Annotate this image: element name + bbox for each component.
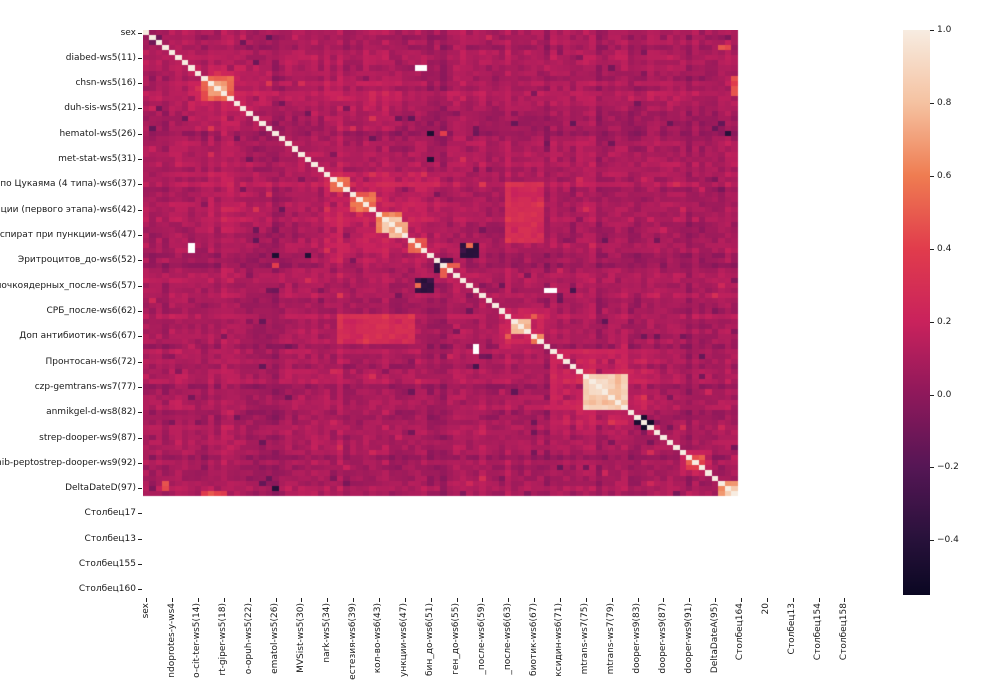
- colorbar-tick-label: 0.8: [937, 98, 951, 108]
- x-tick-mark: [405, 598, 406, 602]
- y-tick-label: czp-gemtrans-ws7(77): [35, 382, 136, 392]
- y-tick-mark: [138, 58, 142, 59]
- x-tick-label: _после-ws6(63): [503, 603, 514, 675]
- x-tick-mark: [715, 598, 716, 602]
- y-tick-mark: [138, 539, 142, 540]
- y-tick-label: chsn-ws5(16): [75, 78, 136, 88]
- x-tick-label: mtrans-ws7(75): [580, 603, 591, 674]
- x-tick-mark: [146, 598, 147, 602]
- colorbar-tick-label: −0.4: [937, 535, 959, 545]
- x-tick-label: Столбец158: [839, 603, 850, 660]
- x-tick-label: Столбец154: [813, 603, 824, 660]
- y-tick-mark: [138, 83, 142, 84]
- heatmap-canvas: [143, 30, 867, 597]
- y-tick-mark: [138, 184, 142, 185]
- y-tick-label: strep-dooper-ws9(87): [39, 433, 136, 443]
- x-tick-label: rt-giper-ws5(18): [218, 603, 229, 676]
- y-tick-label: duh-sis-ws5(21): [64, 103, 136, 113]
- y-tick-mark: [138, 564, 142, 565]
- x-tick-mark: [663, 598, 664, 602]
- y-tick-label: DeltaDateD(97): [65, 483, 136, 493]
- y-tick-label: й аспират при пункции-ws6(47): [0, 230, 136, 240]
- colorbar-tick-mark: [930, 322, 934, 323]
- x-tick-label: Столбец13: [787, 603, 798, 654]
- colorbar-tick-label: 0.6: [937, 171, 951, 181]
- x-tick-mark: [250, 598, 251, 602]
- x-tick-mark: [276, 598, 277, 602]
- y-tick-mark: [138, 210, 142, 211]
- x-tick-label: o-cit-ter-ws5(14): [192, 603, 203, 678]
- y-tick-label: Палочкоядерных_после-ws6(57): [0, 281, 136, 291]
- x-tick-label: MVSist-ws5(30): [296, 603, 307, 673]
- y-tick-label: ЛИ по Цукаяма (4 типа)-ws6(37): [0, 179, 136, 189]
- x-tick-label: o-opuh-ws5(22): [244, 603, 255, 674]
- y-tick-mark: [138, 260, 142, 261]
- x-tick-label: 20: [761, 603, 772, 614]
- colorbar-tick-mark: [930, 467, 934, 468]
- y-tick-mark: [138, 438, 142, 439]
- y-tick-label: pinib-peptostrep-dooper-ws9(92): [0, 458, 136, 468]
- colorbar-tick-mark: [930, 395, 934, 396]
- x-tick-label: mtrans-ws7(79): [606, 603, 617, 674]
- y-tick-mark: [138, 311, 142, 312]
- y-tick-mark: [138, 235, 142, 236]
- x-tick-mark: [431, 598, 432, 602]
- y-tick-label: Столбец13: [85, 534, 136, 544]
- x-tick-mark: [560, 598, 561, 602]
- y-tick-label: hematol-ws5(26): [59, 129, 136, 139]
- x-tick-label: биотик-ws6(67): [529, 603, 540, 676]
- x-tick-label: ген_до-ws6(55): [451, 603, 462, 675]
- y-tick-mark: [138, 488, 142, 489]
- colorbar-tick-label: −0.2: [937, 462, 959, 472]
- colorbar: [903, 30, 930, 595]
- y-tick-label: ерации (первого этапа)-ws6(42): [0, 205, 136, 215]
- y-tick-label: diabed-ws5(11): [66, 53, 136, 63]
- x-tick-mark: [457, 598, 458, 602]
- colorbar-tick-label: 0.2: [937, 317, 951, 327]
- y-tick-label: anmikgel-d-ws8(82): [46, 407, 136, 417]
- x-tick-mark: [353, 598, 354, 602]
- x-tick-mark: [508, 598, 509, 602]
- colorbar-tick-mark: [930, 249, 934, 250]
- x-tick-mark: [638, 598, 639, 602]
- x-tick-label: _после-ws6(59): [477, 603, 488, 675]
- y-tick-label: Эритроцитов_до-ws6(52): [18, 255, 136, 265]
- x-tick-mark: [793, 598, 794, 602]
- y-tick-label: Столбец160: [79, 584, 136, 594]
- y-tick-mark: [138, 513, 142, 514]
- x-tick-label: sex: [141, 603, 152, 618]
- colorbar-tick-label: 1.0: [937, 25, 951, 35]
- colorbar-tick-mark: [930, 30, 934, 31]
- x-tick-label: кол-во-ws6(43): [373, 603, 384, 673]
- x-tick-mark: [534, 598, 535, 602]
- x-tick-label: бин_до-ws6(51): [425, 603, 436, 676]
- y-tick-label: met-stat-ws5(31): [58, 154, 136, 164]
- x-tick-label: DeltaDateA(95): [710, 603, 721, 673]
- y-tick-mark: [138, 159, 142, 160]
- y-tick-mark: [138, 362, 142, 363]
- y-tick-label: sex: [121, 28, 136, 38]
- x-tick-label: dooper-ws9(91): [684, 603, 695, 674]
- y-tick-label: Пронтосан-ws6(72): [46, 357, 136, 367]
- y-tick-mark: [138, 108, 142, 109]
- x-tick-mark: [767, 598, 768, 602]
- y-tick-mark: [138, 134, 142, 135]
- y-tick-mark: [138, 412, 142, 413]
- x-tick-mark: [224, 598, 225, 602]
- colorbar-tick-label: 0.0: [937, 390, 951, 400]
- x-tick-mark: [844, 598, 845, 602]
- x-tick-label: ункции-ws6(47): [399, 603, 410, 677]
- x-tick-label: nark-ws5(34): [322, 603, 333, 663]
- x-tick-mark: [586, 598, 587, 602]
- y-tick-mark: [138, 589, 142, 590]
- y-tick-mark: [138, 463, 142, 464]
- y-tick-mark: [138, 33, 142, 34]
- x-tick-mark: [198, 598, 199, 602]
- x-tick-mark: [301, 598, 302, 602]
- colorbar-tick-mark: [930, 103, 934, 104]
- x-tick-label: естезия-ws6(39): [348, 603, 359, 680]
- y-tick-label: Столбец155: [79, 559, 136, 569]
- x-tick-mark: [327, 598, 328, 602]
- x-tick-mark: [612, 598, 613, 602]
- colorbar-tick-mark: [930, 540, 934, 541]
- x-tick-mark: [482, 598, 483, 602]
- y-tick-label: Доп антибиотик-ws6(67): [19, 331, 136, 341]
- y-tick-mark: [138, 336, 142, 337]
- x-tick-label: Столбец164: [735, 603, 746, 660]
- x-tick-mark: [172, 598, 173, 602]
- y-tick-mark: [138, 286, 142, 287]
- x-tick-label: dooper-ws9(87): [658, 603, 669, 674]
- x-tick-mark: [689, 598, 690, 602]
- x-tick-mark: [819, 598, 820, 602]
- y-tick-label: СРБ_после-ws6(62): [46, 306, 136, 316]
- x-tick-label: ксидин-ws6(71): [554, 603, 565, 677]
- x-tick-mark: [379, 598, 380, 602]
- y-tick-label: Столбец17: [85, 508, 136, 518]
- x-tick-label: ndoprotes-y-ws4: [167, 603, 178, 678]
- correlation-heatmap-figure: sexdiabed-ws5(11)chsn-ws5(16)duh-sis-ws5…: [0, 0, 985, 679]
- y-tick-mark: [138, 387, 142, 388]
- colorbar-tick-label: 0.4: [937, 244, 951, 254]
- x-tick-mark: [741, 598, 742, 602]
- x-tick-label: ematol-ws5(26): [270, 603, 281, 674]
- x-tick-label: dooper-ws9(83): [632, 603, 643, 674]
- colorbar-tick-mark: [930, 176, 934, 177]
